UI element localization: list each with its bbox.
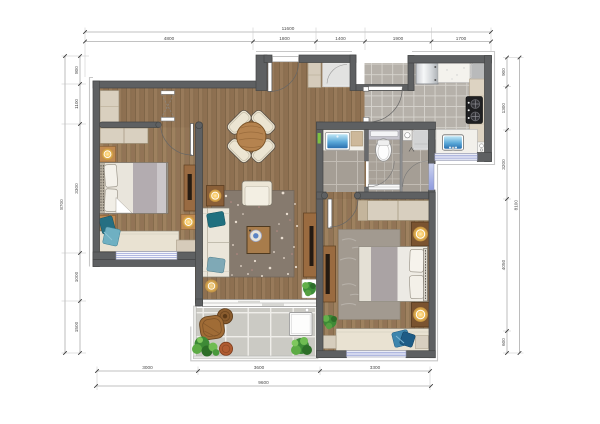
svg-text:4050: 4050 — [501, 259, 506, 270]
svg-text:9600: 9600 — [258, 380, 269, 385]
svg-text:3200: 3200 — [501, 159, 506, 170]
svg-text:3600: 3600 — [254, 365, 265, 370]
svg-text:1500: 1500 — [74, 321, 79, 332]
svg-text:1800: 1800 — [279, 36, 290, 41]
svg-text:1900: 1900 — [393, 36, 404, 41]
svg-text:8100: 8100 — [514, 200, 519, 211]
svg-text:600: 600 — [501, 338, 506, 346]
svg-text:1400: 1400 — [335, 36, 346, 41]
svg-text:8700: 8700 — [59, 199, 64, 210]
svg-text:3300: 3300 — [74, 183, 79, 194]
svg-text:1100: 1100 — [74, 99, 79, 109]
svg-text:1000: 1000 — [74, 271, 79, 282]
svg-text:3300: 3300 — [370, 365, 381, 370]
svg-text:4800: 4800 — [164, 36, 175, 41]
svg-text:1700: 1700 — [456, 36, 467, 41]
svg-text:800: 800 — [74, 66, 79, 74]
svg-text:3000: 3000 — [142, 365, 153, 370]
svg-text:11600: 11600 — [282, 26, 295, 31]
svg-text:900: 900 — [501, 68, 506, 76]
svg-text:1300: 1300 — [501, 103, 506, 114]
